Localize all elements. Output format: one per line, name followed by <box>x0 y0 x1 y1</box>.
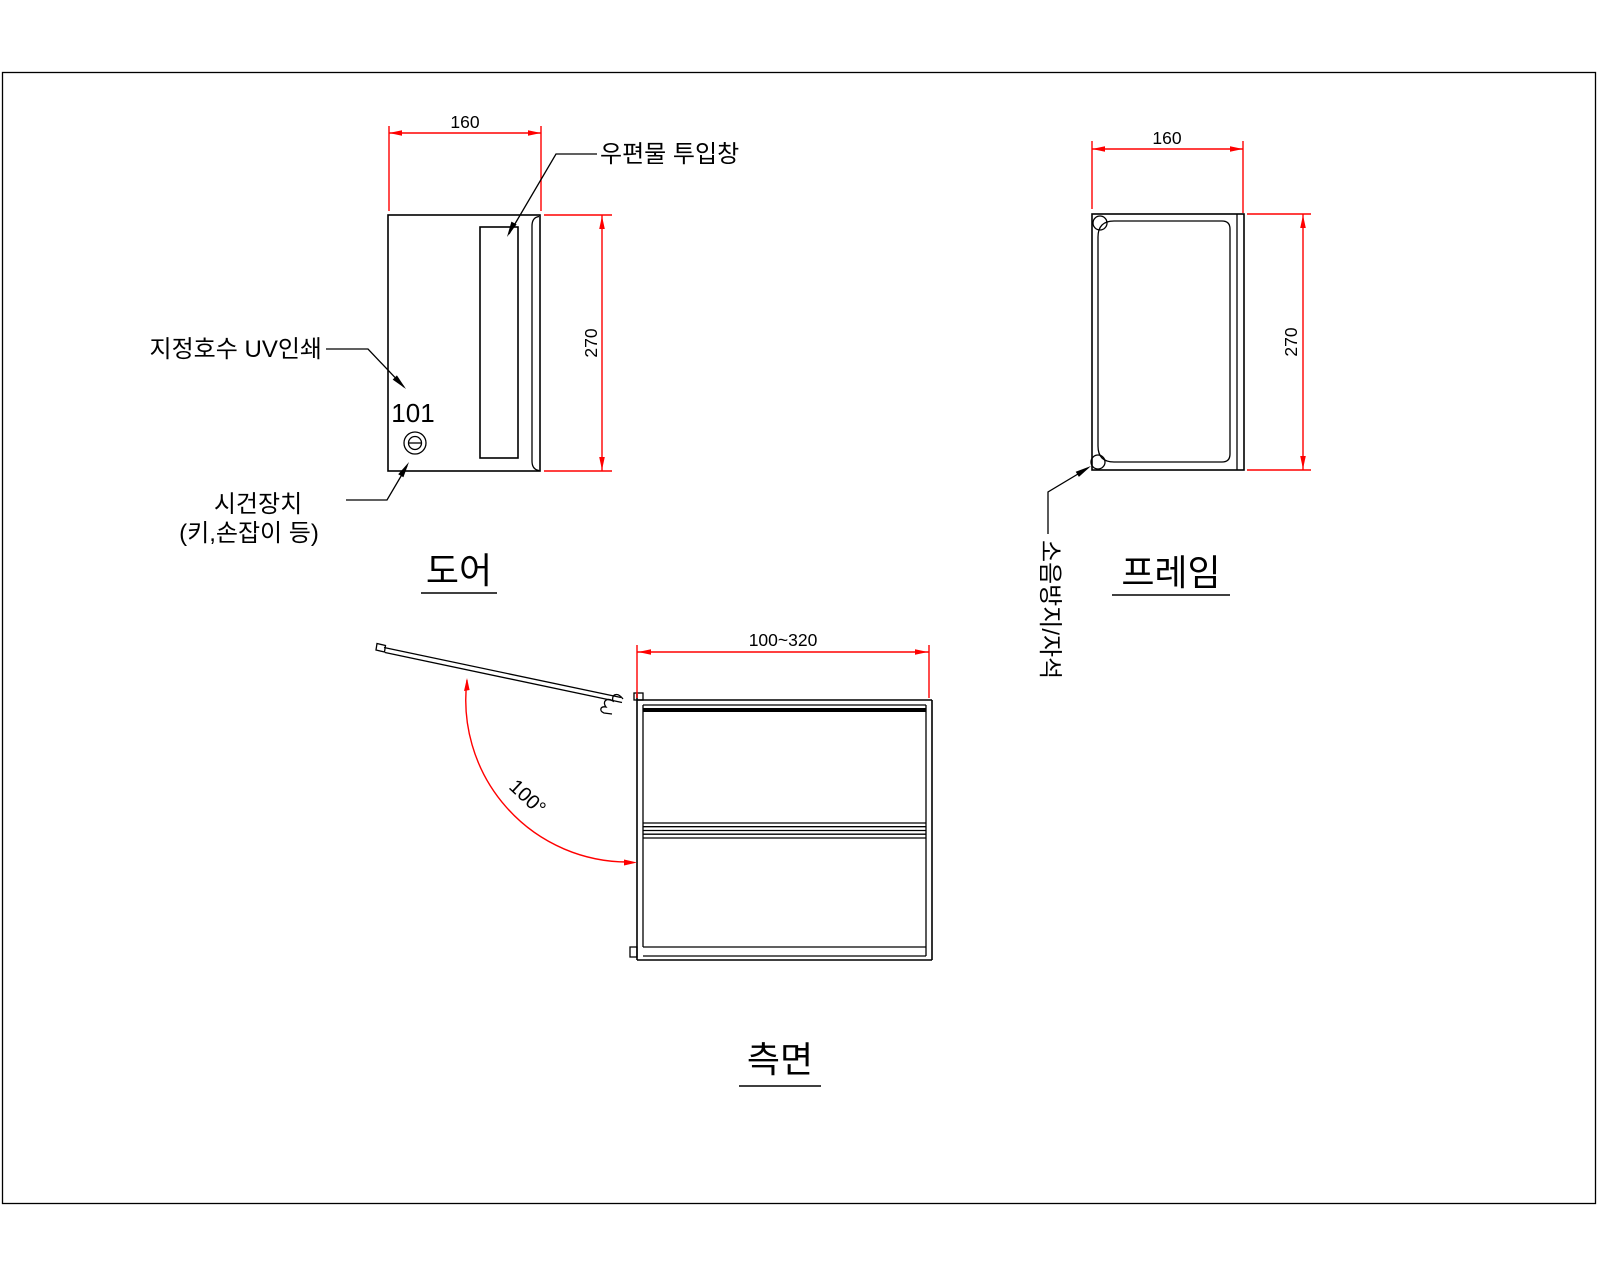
dim-arrow <box>1230 146 1243 152</box>
leader-arrow <box>1076 466 1091 477</box>
side-depth-text: 100~320 <box>749 630 818 650</box>
magnet-hole-bottom <box>1091 455 1105 469</box>
dim-arrow <box>915 649 928 655</box>
dim-arrow <box>599 216 605 229</box>
cad-drawing: 101 160 270 우편물 투입 <box>0 0 1600 1280</box>
dim-arrow <box>638 649 651 655</box>
frame-height-dimension: 270 <box>1247 214 1311 470</box>
frame-height-text: 270 <box>1281 327 1301 356</box>
lock-leader: 시건장치 (키,손잡이 등) <box>179 462 409 547</box>
door-width-text: 160 <box>450 112 479 132</box>
door-height-text: 270 <box>581 328 601 357</box>
door-unit-number: 101 <box>391 398 434 428</box>
mail-slot <box>480 227 518 458</box>
dim-arrow <box>464 678 470 691</box>
mail-slot-label: 우편물 투입창 <box>600 141 739 168</box>
dim-arrow <box>528 130 541 136</box>
frame-inner-opening <box>1098 221 1230 462</box>
frame-width-dimension: 160 <box>1092 128 1243 213</box>
dim-arrow <box>1092 146 1105 152</box>
dim-arrow <box>389 130 402 136</box>
frame-view: 160 270 소음방지/자석 프레임 <box>1036 128 1311 679</box>
dim-arrow <box>1300 456 1306 469</box>
frame-width-text: 160 <box>1152 128 1181 148</box>
side-depth-dimension: 100~320 <box>637 630 929 698</box>
frame-outline <box>1092 214 1244 470</box>
leader-arrow <box>507 222 517 237</box>
door-height-dimension: 270 <box>544 215 612 471</box>
lock-label-line2: (키,손잡이 등) <box>179 520 319 547</box>
middle-rail <box>643 823 926 838</box>
uv-print-leader: 지정호수 UV인쇄 <box>150 336 407 389</box>
leader-arrow <box>398 462 409 477</box>
door-width-dimension: 160 <box>389 112 541 211</box>
uv-print-label: 지정호수 UV인쇄 <box>150 336 323 363</box>
door-fold-edge <box>532 217 539 471</box>
door-view: 101 160 270 우편물 투입 <box>150 112 740 593</box>
lock-label-line1: 시건장치 <box>214 491 302 518</box>
hinge-bracket <box>634 693 643 700</box>
dim-arrow <box>624 860 637 866</box>
side-view: 100° 100~320 측면 <box>376 630 932 1086</box>
drawing-sheet: 101 160 270 우편물 투입 <box>0 0 1600 1280</box>
dim-arrow <box>1300 215 1306 228</box>
magnet-label: 소음방지/자석 <box>1036 540 1063 679</box>
mail-slot-leader: 우편물 투입창 <box>507 141 739 237</box>
magnet-leader: 소음방지/자석 <box>1036 466 1091 679</box>
door-title: 도어 <box>426 550 492 591</box>
side-box <box>630 693 932 960</box>
dim-arrow <box>599 457 605 470</box>
frame-title: 프레임 <box>1121 552 1220 593</box>
bottom-tab <box>630 947 637 957</box>
side-title: 측면 <box>747 1039 813 1080</box>
lock-device <box>404 432 426 454</box>
open-angle-dimension: 100° <box>464 678 637 866</box>
open-door-flap <box>376 644 623 715</box>
